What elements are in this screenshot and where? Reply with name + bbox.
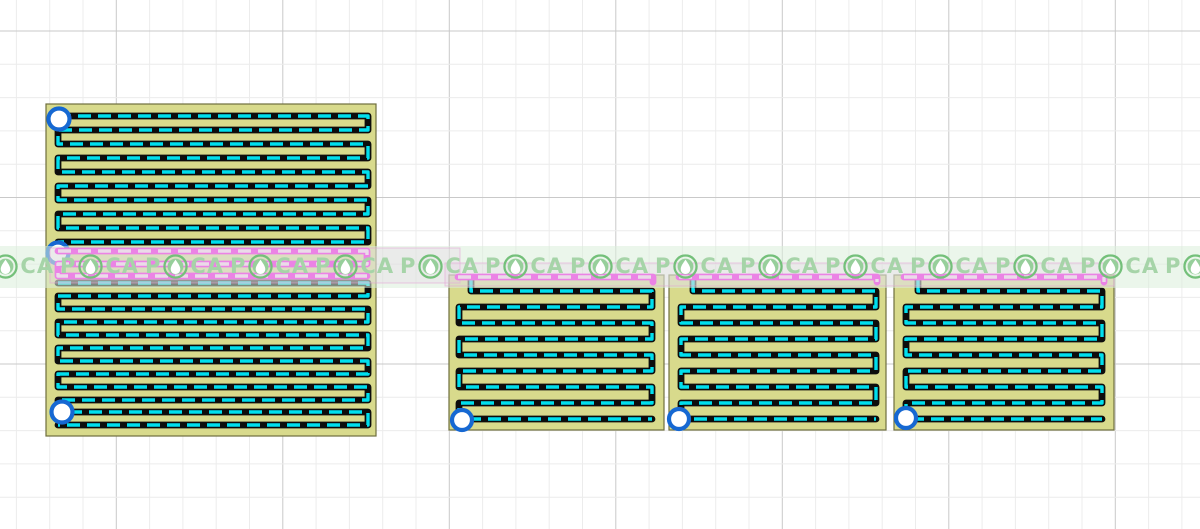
board-panel-3[interactable] bbox=[894, 275, 1114, 430]
solder-pad[interactable] bbox=[669, 409, 689, 429]
solder-pad[interactable] bbox=[896, 408, 916, 428]
solder-pad[interactable] bbox=[452, 410, 472, 430]
solder-pad[interactable] bbox=[52, 402, 73, 423]
board-panel-2[interactable] bbox=[669, 275, 886, 430]
pcb-drawing-surface[interactable] bbox=[0, 0, 1200, 529]
selection-handle[interactable] bbox=[1111, 261, 1118, 268]
board-panel-1[interactable] bbox=[449, 275, 664, 430]
solder-pad[interactable] bbox=[49, 109, 70, 130]
pcb-layout-canvas[interactable]: PCAPCAPCAPCAPCAPCAPCAPCAPCAPCAPCAPCAPCAP… bbox=[0, 0, 1200, 529]
